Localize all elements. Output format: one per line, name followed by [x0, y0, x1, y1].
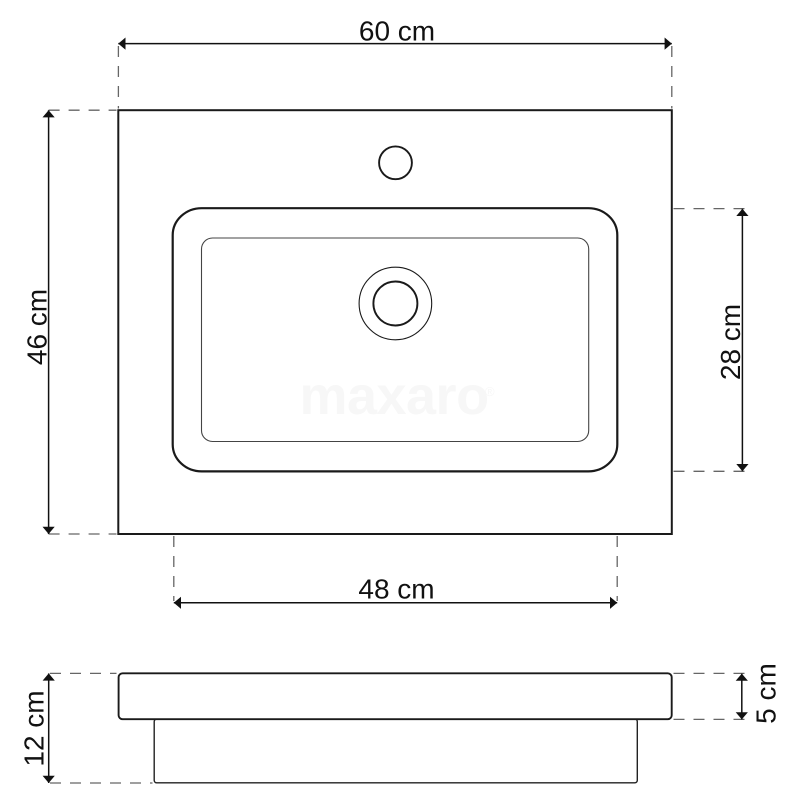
svg-text:28 cm: 28 cm [715, 304, 746, 380]
svg-text:46 cm: 46 cm [21, 289, 52, 365]
svg-text:60 cm: 60 cm [359, 16, 435, 47]
svg-text:maxaro: maxaro [299, 366, 488, 426]
svg-text:®: ® [485, 384, 495, 399]
svg-text:48 cm: 48 cm [358, 574, 434, 605]
svg-text:5 cm: 5 cm [751, 663, 782, 724]
svg-text:12 cm: 12 cm [19, 690, 50, 766]
